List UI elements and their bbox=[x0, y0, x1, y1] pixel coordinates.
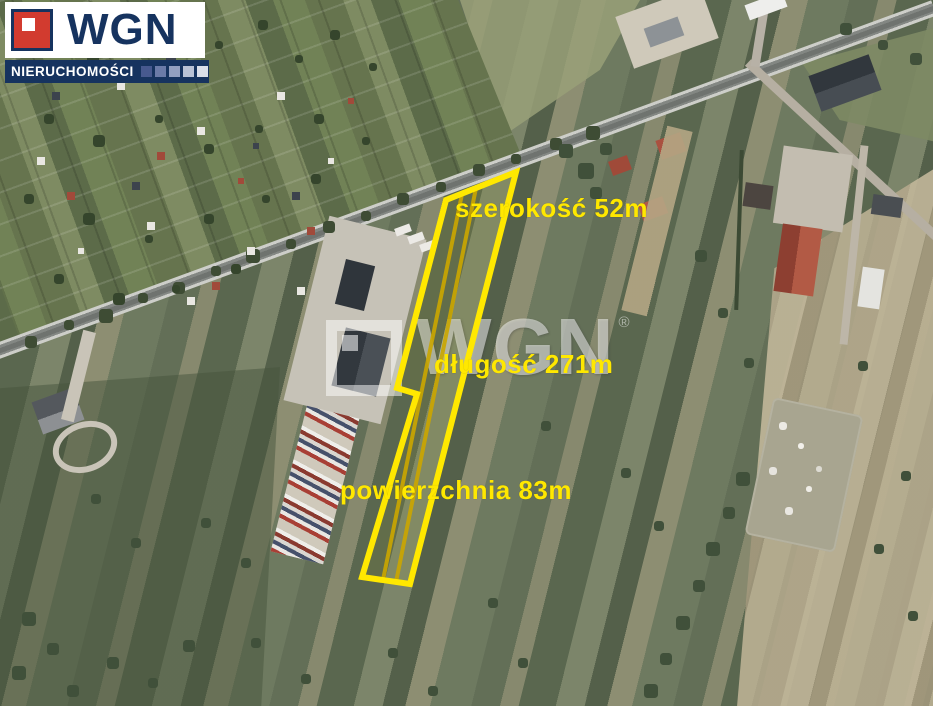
logo-square bbox=[197, 66, 208, 77]
brand-subtitle: NIERUCHOMOŚCI bbox=[11, 64, 134, 79]
wgn-logo-bottom-bar: NIERUCHOMOŚCI bbox=[5, 60, 209, 83]
logo-square bbox=[169, 66, 180, 77]
label-length: długość 271m bbox=[434, 349, 613, 380]
label-width: szerokość 52m bbox=[455, 193, 648, 224]
brand-name: WGN bbox=[67, 8, 178, 52]
label-area: powierzchnia 83m bbox=[340, 475, 572, 506]
logo-squares bbox=[141, 66, 208, 77]
logo-square bbox=[183, 66, 194, 77]
logo-square bbox=[155, 66, 166, 77]
wgn-red-square-inner bbox=[22, 18, 35, 31]
wgn-logo-top-row: WGN bbox=[5, 2, 205, 58]
aerial-listing-image: szerokość 52m długość 271m powierzchnia … bbox=[0, 0, 933, 706]
wgn-logo: WGN NIERUCHOMOŚCI bbox=[5, 2, 209, 83]
wgn-red-square-icon bbox=[11, 9, 53, 51]
logo-square bbox=[141, 66, 152, 77]
